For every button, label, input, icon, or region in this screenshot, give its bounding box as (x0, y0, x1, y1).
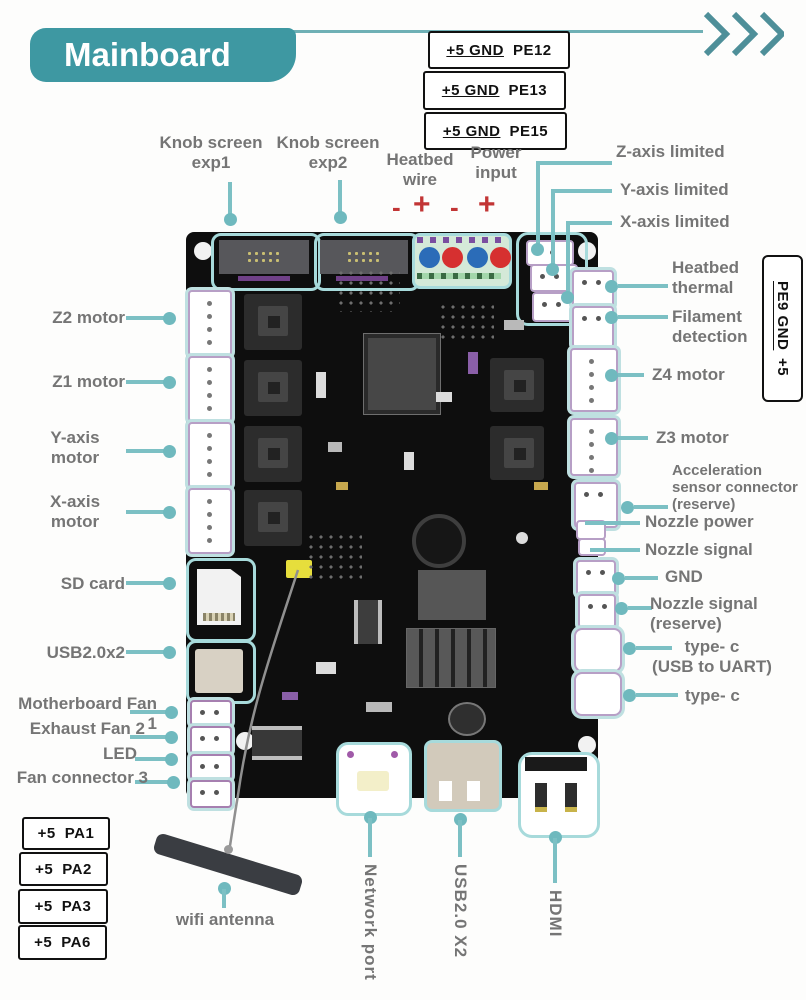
z1-motor-connector (188, 356, 232, 422)
pin-power: +5 GND (443, 123, 501, 140)
z3-motor-connector (570, 418, 618, 476)
leader-z4 (618, 373, 644, 377)
mainboard-diagram: Mainboard +5 GND PE12 +5 GND PE13 +5 GND… (0, 0, 806, 1000)
leader-dot (163, 312, 176, 325)
terminal-silk (417, 237, 501, 243)
leader-dot (165, 706, 178, 719)
leader-nozzle-power (585, 521, 640, 525)
pcb-component (534, 482, 548, 490)
pcb-component (468, 352, 478, 374)
label-hdmi: HDMI (545, 890, 565, 937)
nozzle-signal-reserve-connector (578, 594, 616, 628)
type-c-port (574, 672, 622, 716)
leader-dot (224, 213, 237, 226)
y-motor-connector (188, 422, 232, 488)
label-z3-motor: Z3 motor (656, 428, 729, 448)
leader-dot (334, 211, 347, 224)
power-minus-terminal (467, 247, 488, 268)
label-z1-motor: Z1 motor (30, 372, 125, 392)
pcb-via-grid (306, 532, 362, 580)
label-z4-motor: Z4 motor (652, 365, 725, 385)
pin-power: +5 GND (446, 42, 504, 59)
label-fan-connector3: Fan connector 3 (5, 768, 148, 788)
leader-dot (167, 776, 180, 789)
label-led: LED (5, 744, 137, 764)
pin-port: PE15 (509, 123, 548, 140)
leader-dot (605, 432, 618, 445)
leader-dot (605, 369, 618, 382)
pin-power: +5 GND (442, 82, 500, 99)
stepper-driver (490, 426, 544, 480)
pcb-component (504, 320, 524, 330)
ic-chip (354, 600, 382, 644)
label-x-axis-motor: X-axis motor (35, 492, 115, 532)
stepper-driver (490, 358, 544, 412)
pin-port: PE12 (513, 42, 552, 59)
leader-z3 (618, 436, 648, 440)
pin-box-pa1: +5 PA1 (22, 817, 110, 850)
pcb-component (336, 482, 348, 490)
capacitor (412, 514, 466, 568)
label-power-input: Power input (458, 143, 534, 183)
nozzle-signal-connector (578, 538, 606, 556)
label-filament-detection: Filament detection (672, 307, 748, 347)
leader-dot (623, 689, 636, 702)
network-port-tab (357, 771, 389, 791)
leader-nozzle-reserve (628, 606, 652, 610)
leader-sd (126, 581, 168, 585)
pcb-via-grid (438, 302, 494, 342)
leader-x-limit-v (566, 221, 570, 298)
type-c-uart-port (574, 628, 622, 672)
power-plus-terminal (490, 247, 511, 268)
leader-usb-bottom (458, 820, 462, 857)
exp2-pins (346, 250, 382, 262)
network-pin (391, 751, 398, 758)
screw-hole (194, 242, 212, 260)
leader-dot (621, 501, 634, 514)
pcb-via-grid (336, 268, 400, 312)
label-knob-screen-exp2: Knob screen exp2 (272, 133, 384, 173)
power-terminal-block (412, 233, 512, 289)
network-pin (347, 751, 354, 758)
leader-z1 (126, 380, 168, 384)
pin-box-pa2: +5 PA2 (19, 852, 108, 886)
label-exhaust-fan2: Exhaust Fan 2 (5, 719, 145, 739)
label-y-axis-motor: Y-axis motor (35, 428, 115, 468)
leader-dot (165, 731, 178, 744)
leader-dot (531, 243, 544, 256)
leader-dot (546, 263, 559, 276)
led-connector (190, 754, 232, 780)
pin-port: PE13 (508, 82, 547, 99)
mcu-chip (364, 334, 440, 414)
gnd-connector (576, 560, 616, 596)
leader-y-limit-v (551, 189, 555, 270)
label-type-c-uart: type- c (USB to UART) (650, 637, 774, 677)
chevron-right-icon (700, 10, 784, 58)
pin-box-pa3: +5 PA3 (18, 889, 108, 924)
x-motor-connector (188, 488, 232, 554)
polarity-minus: - (392, 192, 401, 223)
sd-card-slot (186, 558, 256, 642)
label-y-axis-limited: Y-axis limited (620, 180, 729, 200)
heatbed-minus-terminal (419, 247, 440, 268)
usb2-bottom-port (424, 740, 502, 812)
pcb-component (316, 372, 326, 398)
label-network-port: Network port (360, 864, 380, 981)
motherboard-fan1-connector (190, 700, 232, 726)
leader-dot (163, 445, 176, 458)
hdmi-contact (535, 783, 547, 812)
leader-y-limit-h (553, 189, 612, 193)
pcb-component (404, 452, 414, 470)
leader-dot (163, 577, 176, 590)
usb-slot (439, 781, 452, 801)
label-z-axis-limited: Z-axis limited (616, 142, 725, 162)
stepper-driver (244, 294, 302, 350)
pcb-component (328, 442, 342, 452)
pcb-component (282, 692, 298, 700)
polarity-plus: + (413, 188, 431, 222)
sd-contacts (203, 613, 235, 621)
label-z2-motor: Z2 motor (30, 308, 125, 328)
hdmi-port (518, 752, 600, 838)
leader-dot (623, 642, 636, 655)
leader-z-limit-h (538, 161, 612, 165)
hdmi-shield (525, 757, 587, 771)
leader-wifi (222, 889, 226, 908)
leader-gnd (625, 576, 658, 580)
leader-accel (634, 505, 668, 509)
label-type-c: type- c (685, 686, 740, 706)
leader-x-limit-h (568, 221, 612, 225)
label-sd-card: SD card (30, 574, 125, 594)
ic-chip (252, 726, 302, 760)
exhaust-fan2-connector (190, 726, 232, 754)
leader-z-limit-v (536, 161, 540, 250)
hdmi-contact (565, 783, 577, 812)
pcb-component (316, 662, 336, 674)
leader-hdmi (553, 838, 557, 883)
pin-power: PE9 GND (774, 281, 791, 350)
pin-port: +5 (774, 358, 791, 376)
leader-dot (612, 572, 625, 585)
page-title: Mainboard (64, 36, 231, 73)
leader-dot (163, 376, 176, 389)
label-wifi-antenna: wifi antenna (155, 910, 295, 930)
terminal-base (417, 273, 501, 279)
leader-network (368, 818, 372, 857)
polarity-minus: - (450, 192, 459, 223)
pcb-component (448, 702, 486, 736)
pin-box-pe13: +5 GND PE13 (423, 71, 566, 110)
exp1-pins (246, 250, 282, 262)
leader-usb-left (126, 650, 168, 654)
pcb-component (436, 392, 452, 402)
label-nozzle-signal-reserve: Nozzle signal (reserve) (650, 594, 758, 634)
z2-motor-connector (188, 290, 232, 356)
leader-dot (163, 506, 176, 519)
pcb-component (516, 532, 528, 544)
label-knob-screen-exp1: Knob screen exp1 (155, 133, 267, 173)
label-nozzle-power: Nozzle power (645, 512, 754, 532)
usb2-left-port (186, 640, 256, 704)
leader-heatbed-thermal (618, 284, 668, 288)
pcb-board (186, 232, 598, 798)
label-heatbed-wire: Heatbed wire (381, 150, 459, 190)
stepper-driver (244, 360, 302, 416)
label-x-axis-limited: X-axis limited (620, 212, 730, 232)
usb2-socket (195, 649, 243, 693)
leader-dot (561, 291, 574, 304)
label-usb2-bottom: USB2.0 X2 (450, 864, 470, 958)
antenna-connector (224, 845, 233, 854)
fan3-connector (190, 780, 232, 808)
label-acceleration-sensor: Acceleration sensor connector (reserve) (672, 462, 804, 513)
label-usb2-left: USB2.0x2 (20, 643, 125, 663)
page-title-banner: Mainboard (30, 28, 296, 82)
stepper-driver (244, 426, 302, 482)
leader-x-motor (126, 510, 168, 514)
leader-dot (163, 646, 176, 659)
polarity-plus: + (478, 188, 496, 222)
leader-filament (618, 315, 668, 319)
usb-slot (467, 781, 480, 801)
pin-box-pe9: PE9 GND +5 (762, 255, 803, 402)
leader-nozzle-signal (590, 548, 640, 552)
leader-z2 (126, 316, 168, 320)
pcb-component (366, 702, 392, 712)
network-port (336, 742, 412, 816)
pin-box-pe12: +5 GND PE12 (428, 31, 570, 69)
leader-typec (636, 693, 678, 697)
chip (418, 570, 486, 620)
leader-dot (605, 280, 618, 293)
exp1-silk (238, 276, 290, 281)
label-nozzle-signal: Nozzle signal (645, 540, 753, 560)
label-heatbed-thermal: Heatbed thermal (672, 258, 739, 298)
leader-dot (165, 753, 178, 766)
leader-dot (615, 602, 628, 615)
leader-y-motor (126, 449, 168, 453)
label-gnd: GND (665, 567, 703, 587)
leader-dot (605, 311, 618, 324)
stepper-driver (244, 490, 302, 546)
pin-box-pa6: +5 PA6 (18, 925, 107, 960)
heatsink (406, 628, 496, 688)
heatbed-plus-terminal (442, 247, 463, 268)
